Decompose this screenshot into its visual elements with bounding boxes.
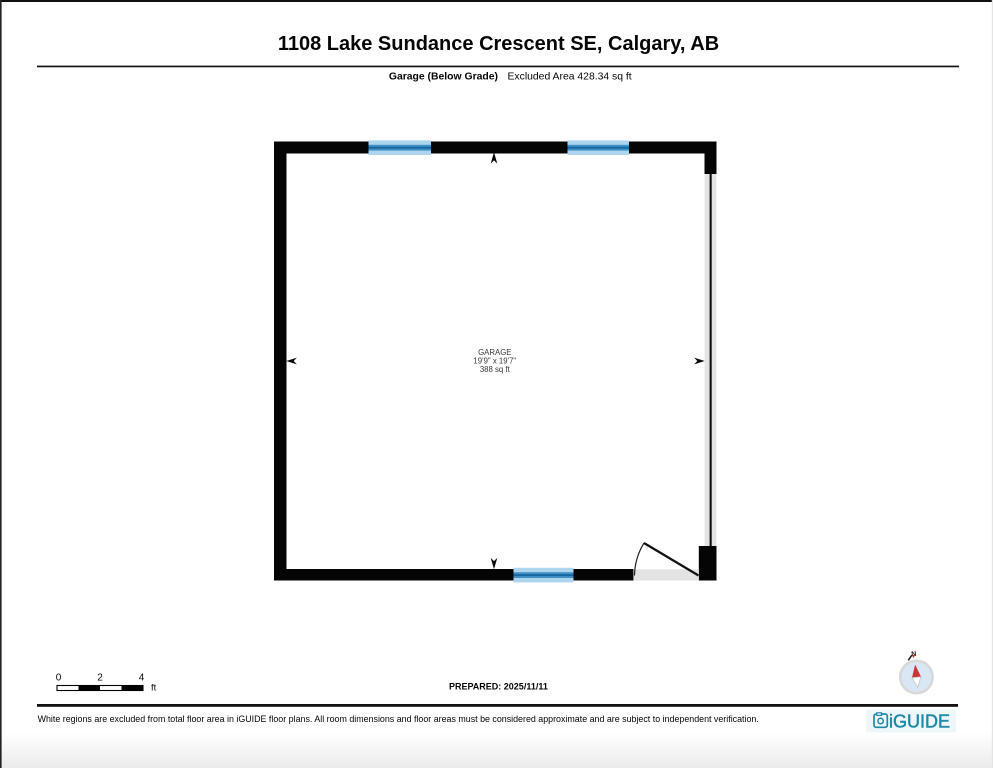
svg-text:Excluded Area 428.34 sq ft: Excluded Area 428.34 sq ft: [508, 72, 632, 83]
svg-text:1108 Lake Sundance Crescent SE: 1108 Lake Sundance Crescent SE, Calgary,…: [278, 33, 719, 55]
svg-text:388 sq ft: 388 sq ft: [480, 365, 511, 374]
svg-text:N: N: [911, 651, 917, 659]
svg-text:4: 4: [139, 673, 145, 684]
svg-text:PREPARED: 2025/11/11: PREPARED: 2025/11/11: [449, 681, 548, 691]
svg-text:iGUIDE: iGUIDE: [889, 711, 950, 731]
svg-text:2: 2: [97, 673, 103, 684]
svg-text:0: 0: [56, 673, 62, 684]
svg-text:Garage (Below Grade): Garage (Below Grade): [389, 72, 498, 83]
svg-text:ft: ft: [151, 683, 157, 694]
svg-text:White regions are excluded fro: White regions are excluded from total fl…: [38, 714, 759, 724]
